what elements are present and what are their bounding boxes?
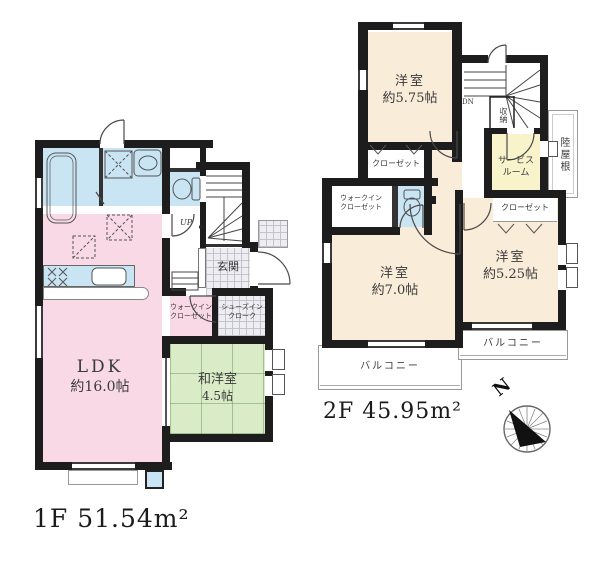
balcony-70-label: バルコニー [318,360,462,373]
room-label-wic-1f: ウォークイン クローゼット [160,303,222,321]
room-label-genkan: 玄関 [206,260,250,274]
wall-segment [322,178,438,186]
room-label-closet-525: クローゼット [493,203,557,213]
wall-segment [558,265,566,270]
wall-segment [200,202,206,248]
corridor-2f [462,128,484,190]
wall-segment [455,190,463,348]
wall-segment [162,462,172,470]
wall-segment [162,288,186,296]
wall-segment [242,162,250,248]
stairs-dn-label: DN [462,98,474,107]
window-symbol [472,322,532,330]
wall-segment [35,140,100,148]
room-label-ldk: LDK 約16.0帖 [55,356,145,396]
wall-segment [392,186,398,227]
wall-segment [162,336,273,344]
water-heater [145,470,164,489]
wall-segment [35,358,43,462]
window-symbol [368,340,425,348]
wall-segment [452,22,462,162]
room-label-sic: シューズイン クローク [214,303,270,321]
wall-segment [200,140,206,176]
porch [258,220,288,248]
flat-roof-label: 陸屋根 [556,128,570,182]
window-symbol [72,462,135,470]
wall-segment [358,142,462,150]
wall-segment [35,140,43,178]
balcony-525-rail [460,355,566,356]
floor1-area-label: 1F 51.54m² [33,503,190,536]
wall-segment [162,434,273,442]
wall-segment [491,190,566,198]
wall-segment [322,263,332,348]
room-label-bedroom-70: 洋室 約7.0帖 [345,266,445,300]
compass-icon [504,406,550,452]
room-label-bedroom-575: 洋室 約5.75帖 [368,74,452,108]
wall-segment [540,157,548,198]
wall-segment [432,196,436,204]
casement-window-symbol [566,267,578,288]
room-label-storage: 収納 [496,100,508,130]
casement-window-symbol [272,374,285,395]
wall-segment [250,242,258,252]
wall-segment [35,462,72,470]
window-symbol [393,22,424,30]
balcony-70-rail [320,385,460,386]
room-ldk [43,214,162,462]
wall-segment [99,148,103,206]
room-toilet-2f [398,186,424,227]
room-bathroom [43,148,99,206]
wall-segment [424,227,432,235]
terrace-step [68,470,138,485]
window-symbol [35,178,43,208]
stairs-up-label: UP [180,218,192,228]
room-label-wic-2f: ウォークイン クローゼット [330,194,392,212]
room-label-closet-575: クローゼット [362,159,430,169]
casement-window-symbol [566,243,578,264]
window-symbol [358,70,368,90]
wall-segment [358,22,368,70]
window-symbol [35,306,43,358]
floorplan-canvas: LDK 約16.0帖 和洋室 4.5帖 玄関 ウォークイン クローゼット シュー… [0,0,600,562]
kitchen-counter [43,265,135,287]
wall-segment [322,227,400,235]
wall-segment [558,190,566,245]
sliding-door-line [165,358,167,426]
wall-segment [218,288,265,296]
casement-window-symbol [272,349,285,370]
wall-segment [162,426,170,462]
room-toilet-1f [170,172,200,206]
balcony-525-label: バルコニー [458,337,568,350]
window-symbol [322,243,332,263]
wall-segment [558,290,566,330]
wall-segment [162,140,170,214]
wall-segment [162,238,170,288]
room-label-washitsu: 和洋室 4.5帖 [170,372,265,404]
room-washroom [103,148,162,206]
wall-segment [484,128,492,198]
closet-525-line [493,221,557,222]
wall-segment [162,344,170,358]
floor2-area-label: 2F 45.95m² [323,398,462,427]
room-label-bedroom-525: 洋室 約5.25帖 [463,250,558,284]
genkan-step [198,248,206,288]
wall-segment [265,396,273,442]
compass-north-label: N [489,373,516,402]
wall-segment [540,55,548,141]
kitchen-counter-band [43,287,149,300]
room-label-service: サービス ルーム [492,156,540,179]
wall-segment [35,208,43,306]
